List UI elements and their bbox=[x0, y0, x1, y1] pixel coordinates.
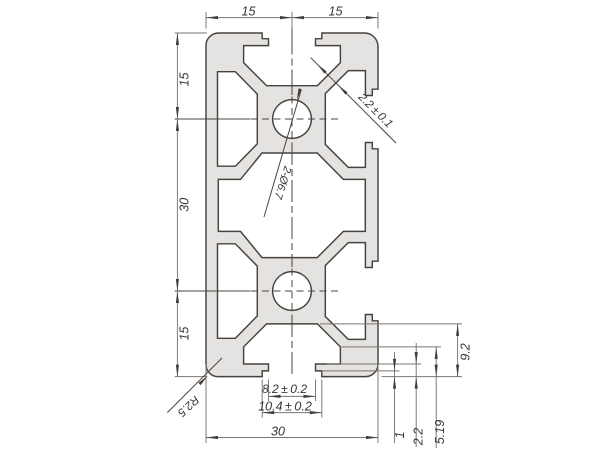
svg-text:9.2: 9.2 bbox=[459, 343, 473, 360]
svg-text:10.4 ± 0.2: 10.4 ± 0.2 bbox=[258, 399, 312, 413]
svg-text:15: 15 bbox=[177, 327, 191, 341]
svg-text:15: 15 bbox=[329, 4, 343, 18]
svg-text:2.2: 2.2 bbox=[412, 428, 426, 446]
svg-text:2.2 ± 0.1: 2.2 ± 0.1 bbox=[355, 90, 395, 130]
svg-text:30: 30 bbox=[177, 198, 191, 212]
svg-text:8.2 ± 0.2: 8.2 ± 0.2 bbox=[262, 382, 307, 396]
svg-text:15: 15 bbox=[177, 73, 191, 87]
svg-text:15: 15 bbox=[242, 4, 256, 18]
svg-text:30: 30 bbox=[271, 425, 285, 439]
svg-text:1: 1 bbox=[393, 432, 407, 439]
svg-text:R2.5: R2.5 bbox=[175, 393, 201, 419]
svg-text:5.19: 5.19 bbox=[433, 420, 447, 444]
